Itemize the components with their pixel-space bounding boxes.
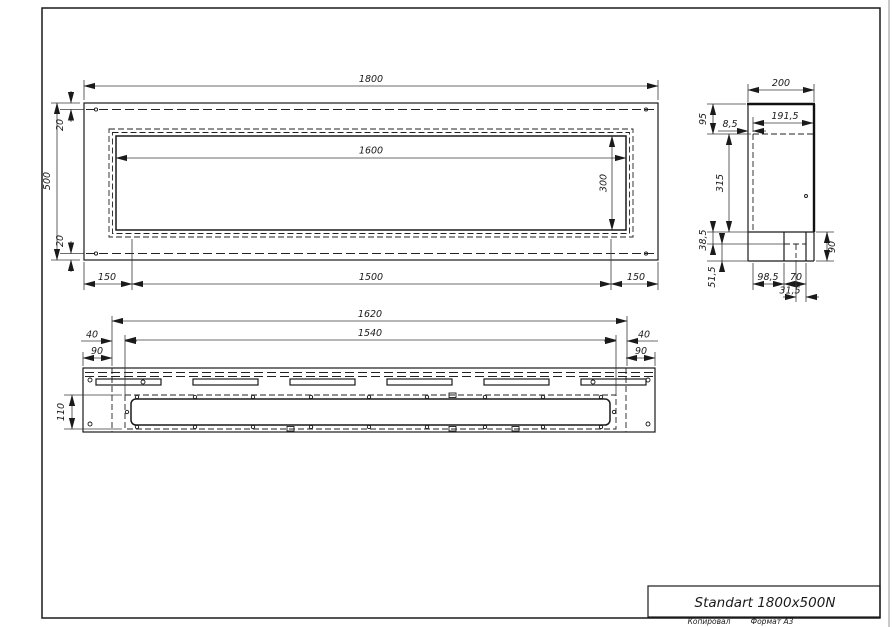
dim-front-total-height: 500 <box>42 172 53 190</box>
dim-top-tray-width-lines <box>64 395 122 429</box>
dim-front-total-width: 1800 <box>359 74 383 85</box>
dim-top-cap-right: 90 <box>635 346 647 357</box>
sheet-frame <box>42 0 889 627</box>
dim-front-offset-left: 150 <box>98 272 116 283</box>
dim-top-body-length-lines <box>112 316 627 366</box>
dim-side-lip: 38,5 <box>698 229 709 250</box>
dim-side-depth: 200 <box>772 78 790 89</box>
vent-slots <box>96 379 646 385</box>
footer-format-label: Формат А3 <box>751 617 794 626</box>
dim-front-flange-top: 20 <box>55 119 66 131</box>
dim-side-tray-height: 90 <box>827 241 838 253</box>
dim-top-body-length: 1620 <box>358 309 382 320</box>
dim-front-center-span: 1500 <box>359 272 383 283</box>
dim-side-tray-len: 98,5 <box>757 272 778 283</box>
dim-top-gap-left: 40 <box>86 330 98 341</box>
technical-drawing: 1800 500 20 20 1600 300 <box>0 0 892 627</box>
dim-side-lip-lines <box>707 221 784 255</box>
title-block: Standart 1800x500N <box>648 586 880 617</box>
footer-copied-label: Копировал <box>688 617 731 626</box>
dim-front-flange-bottom: 20 <box>55 235 66 247</box>
flange-hole-markers <box>94 108 647 255</box>
dim-side-top-section: 95 <box>698 113 709 125</box>
dim-front-opening-height: 300 <box>599 174 610 192</box>
dim-front-offset-right: 150 <box>627 272 645 283</box>
dim-side-inner-depth: 191,5 <box>771 111 798 122</box>
top-view: 1620 1540 40 90 40 90 <box>56 309 658 432</box>
dim-side-tray-end: 31,5 <box>779 286 800 297</box>
burner-tray <box>131 399 610 425</box>
dim-top-gap-right: 40 <box>638 330 650 341</box>
dim-top-burner-length: 1540 <box>358 328 382 339</box>
front-view: 1800 500 20 20 1600 300 <box>42 74 658 290</box>
product-title: Standart 1800x500N <box>695 595 836 611</box>
dim-side-wall-offset: 8,5 <box>722 119 737 130</box>
dim-side-mid-section-lines <box>707 134 748 232</box>
dim-front-opening-width: 1600 <box>359 146 383 157</box>
drawing-sheet: 1800 500 20 20 1600 300 <box>0 0 892 627</box>
screw-hole-markers <box>88 378 650 426</box>
dim-front-flange-top-lines <box>60 91 84 122</box>
dim-side-base: 51,5 <box>707 266 718 287</box>
dim-top-cap-left: 90 <box>91 346 103 357</box>
dim-top-burner-length-lines <box>125 335 616 396</box>
side-view: 200 191,5 8,5 95 315 <box>698 78 838 302</box>
dim-top-tray-width: 110 <box>56 403 67 421</box>
side-hole-marker <box>805 195 808 198</box>
dim-side-mid-section: 315 <box>715 174 726 192</box>
